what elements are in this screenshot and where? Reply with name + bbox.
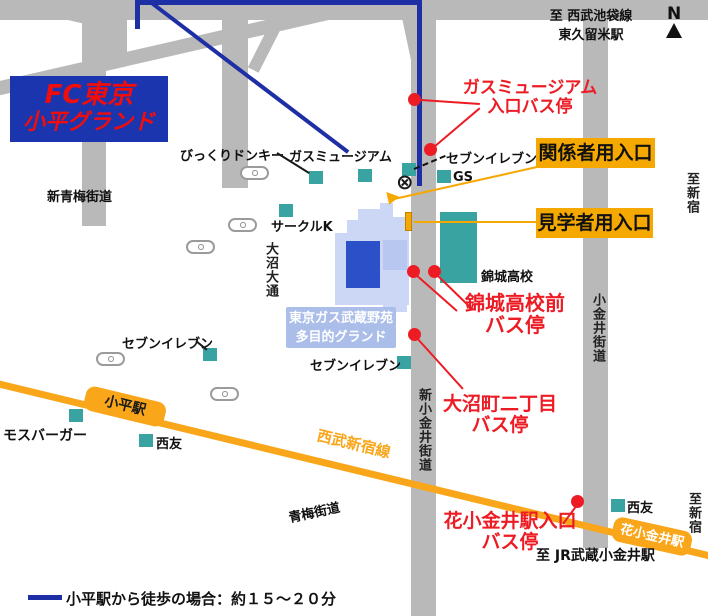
fc-tokyo-title-box: FC東京 小平グランド [10,76,168,142]
poi-square-gas-museum [358,169,372,182]
bus-stop-dot [424,143,437,156]
poi-square-seiyu-east [611,499,625,512]
bus-stop-label-line: バス停 [455,314,575,336]
route-map: 小平駅 花小金井駅 西武新宿線 東京ガス武蔵野苑 多目的グランド FC東京 小平… [0,0,708,616]
traffic-light-icon [210,387,239,401]
bus-stop-label-line: 大沼町二丁目 [440,394,560,415]
facility-main-ground [346,241,380,288]
facility-extension [383,270,407,312]
bus-stop-label-hana-koganei: 花小金井駅入口 バス停 [430,511,590,554]
station-kodaira: 小平駅 [82,385,168,429]
poi-label-seiyu-east: 西友 [627,497,653,516]
direction-shinjuku-top: 至新宿 [682,172,701,214]
visitor-entrance-callout-line [414,221,536,223]
direction-seibu-ikebukuro-line1: 至 西武池袋線 [535,5,647,24]
fc-tokyo-title-line2: 小平グランド [10,110,168,136]
traffic-light-icon [228,218,257,232]
poi-label-seven-eleven-south: セブンイレブン [310,355,401,374]
traffic-light-icon [96,352,125,366]
poi-square-gas-station [437,170,451,183]
poi-label-kinjo-high-school: 錦城高校 [481,266,533,285]
bus-stop-label-kinjo-mae: 錦城高校前 バス停 [455,292,575,337]
traffic-light-icon [186,240,215,254]
facility-label-line1: 東京ガス武蔵野苑 [286,310,396,329]
poi-square-mos-burger [69,409,83,422]
bus-stop-label-gas-museum: ガスミュージアム 入口バス停 [455,79,605,117]
legend-walk-note: 小平駅から徒歩の場合：約１５～２０分 [66,588,336,609]
poi-label-seiyu-west: 西友 [156,433,182,452]
legend-route-sample-line [28,595,62,600]
visitor-entrance-marker [405,212,412,231]
road-bottomleft-stub [106,0,127,58]
direction-shinjuku-bottom: 至新宿 [684,492,703,534]
fc-tokyo-title-line1: FC東京 [10,81,168,110]
road-break-icon [509,463,527,493]
direction-seibu-ikebukuro: 至 西武池袋線 東久留米駅 [535,5,647,43]
poi-square-seiyu-west [139,434,153,447]
bus-stop-label-onuma-2chome: 大沼町二丁目 バス停 [440,394,560,437]
compass-n-label: N [667,4,681,24]
bus-stop-dot [407,265,420,278]
road-label-shin-oume-kaido: 新青梅街道 [47,186,112,205]
poi-label-circle-k: サークルK [271,216,333,235]
bus-stop-dot [408,93,421,106]
road-break-icon [523,362,535,388]
station-kodaira-label: 小平駅 [103,393,148,418]
road-label-koganei-kaido: 小金井街道 [588,293,607,363]
bus-stop-dot [428,265,441,278]
facility-sub-area [383,240,407,270]
bus-stop-label-line: バス停 [440,415,560,436]
traffic-light-icon [240,166,269,180]
walk-route-segment [253,0,422,5]
staff-entrance-box: 関係者用入口 [536,138,655,168]
bus-stop-dot [571,495,584,508]
bus-stop-label-line: 錦城高校前 [455,292,575,314]
bus-stop-label-line: ガスミュージアム [455,79,605,98]
poi-label-gas-museum: ガスミュージアム [289,146,392,165]
poi-label-gas-station: GS [453,170,473,185]
road-break-icon [521,182,533,208]
road-label-oume-kaido: 青梅街道 [287,497,342,526]
bus-stop-label-line: 花小金井駅入口 [430,511,590,532]
visitor-entrance-box: 見学者用入口 [536,208,653,238]
bus-stop-label-line: バス停 [430,532,590,553]
compass-arrow-icon [666,23,682,38]
railroad-crossing-icon: ⊗ [396,172,414,193]
poi-label-seven-eleven-north: セブンイレブン [446,148,537,167]
poi-label-mos-burger: モスバーガー [3,425,87,445]
facility-label-line2: 多目的グランド [286,329,396,348]
road-label-shin-koganei-kaido: 新小金井街道 [414,388,433,472]
road-break-icon [168,359,180,385]
poi-label-bikkuri-donkey: びっくりドンキー [180,145,284,164]
facility-label-box: 東京ガス武蔵野苑 多目的グランド [286,307,396,348]
bus-stop-label-line: 入口バス停 [455,98,605,117]
road-label-onuma-odori: 大沼大通 [261,242,280,298]
poi-square-bikkuri-donkey [309,171,323,184]
bus-stop-dot [408,328,421,341]
direction-higashi-kurume-line2: 東久留米駅 [535,24,647,43]
